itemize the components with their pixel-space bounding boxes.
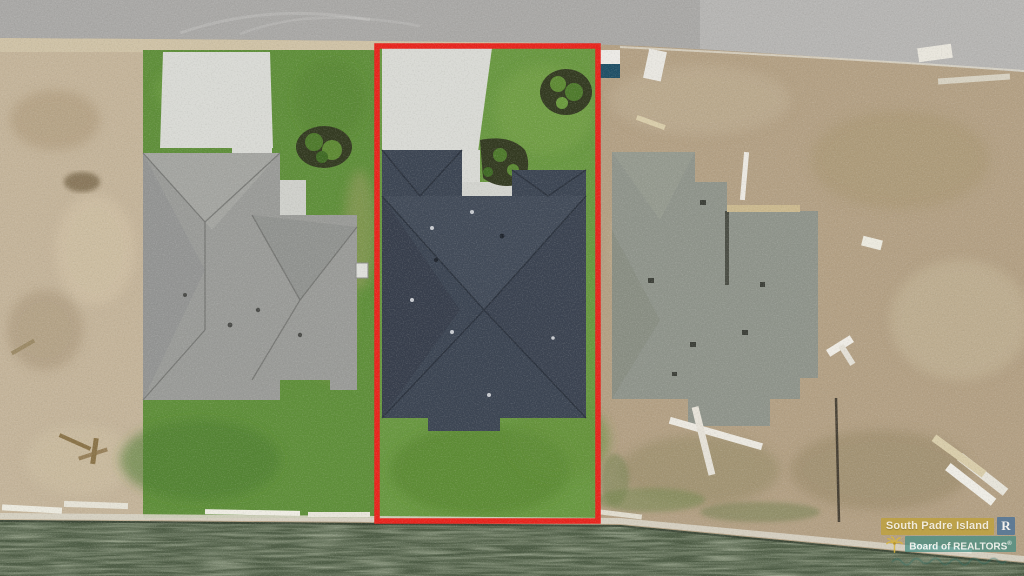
photo-grain-dark <box>0 0 1024 576</box>
watermark-tagline-script <box>890 554 1012 568</box>
watermark-line1: South Padre Island <box>881 518 994 535</box>
aerial-listing-photo: South Padre Island R Board of REALTORS® <box>0 0 1024 576</box>
aerial-scene <box>0 0 1024 576</box>
realtor-logo-icon: R <box>997 517 1015 535</box>
watermark-line2: Board of REALTORS® <box>905 536 1016 552</box>
registered-mark: ® <box>1007 541 1011 547</box>
palm-tree-icon <box>885 535 904 554</box>
realtor-watermark: South Padre Island R Board of REALTORS® <box>878 516 1024 574</box>
